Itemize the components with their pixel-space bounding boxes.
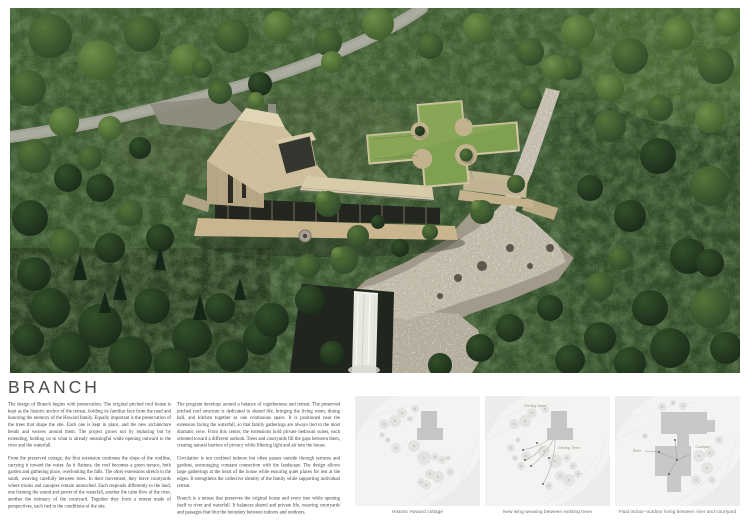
essay-paragraph: The design of Branch begins with preserv… — [8, 401, 171, 449]
page-title: BRANCH — [8, 377, 100, 398]
aerial-render-image — [10, 8, 740, 373]
essay-column-1: The design of Branch begins with preserv… — [8, 401, 171, 516]
diagram-label: River — [633, 449, 642, 453]
diagram-new-wing: Existing Trees Existing Trees — [485, 396, 610, 506]
diagram-indoor-outdoor: River Courtyard — [615, 396, 740, 506]
essay-paragraph: The program develops around a balance of… — [177, 401, 340, 449]
essay-paragraph: Circulation is not confined indoors but … — [177, 455, 340, 489]
essay-paragraph: Branch is a retreat that preserves the o… — [177, 495, 340, 516]
essay-column-2: The program develops around a balance of… — [177, 401, 340, 522]
diagram-label: Existing Trees — [524, 404, 546, 408]
diagram-caption: New wing weaving between existing trees — [485, 509, 610, 514]
diagram-caption: Historic Howard cottage — [355, 509, 480, 514]
diagram-caption: Fluid indoor–outdoor living between rive… — [615, 509, 740, 514]
essay-paragraph: From the preserved cottage, the first ex… — [8, 455, 171, 510]
diagram-historic-cottage — [355, 396, 480, 506]
diagram-label: Existing Trees — [558, 446, 580, 450]
presentation-board: { "title": "BRANCH", "essay": { "col1": … — [0, 0, 750, 530]
diagram-label: Courtyard — [696, 445, 711, 449]
